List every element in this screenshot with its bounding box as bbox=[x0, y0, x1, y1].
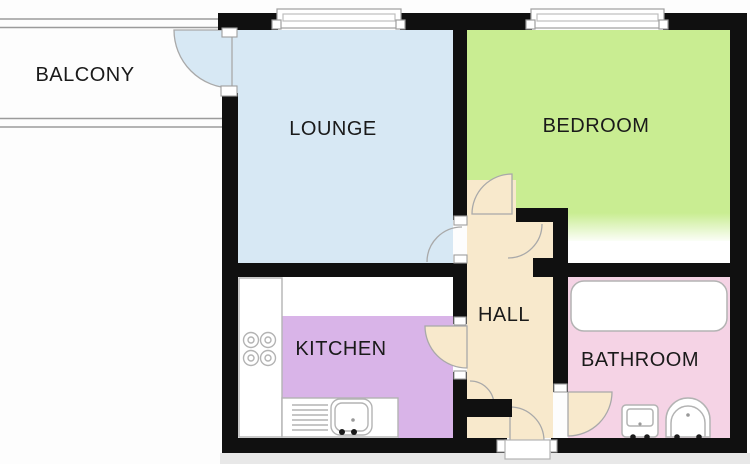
wash-basin-icon bbox=[666, 398, 710, 440]
wall-hall-bathroom bbox=[553, 222, 568, 392]
wall-lounge-kitchen bbox=[222, 263, 467, 277]
wall-doorway-jamb bbox=[533, 258, 553, 277]
bedroom-window bbox=[526, 9, 668, 29]
bathtub-icon bbox=[571, 281, 727, 331]
hall-label: HALL bbox=[478, 304, 530, 326]
wall-bedroom-bathroom bbox=[553, 263, 747, 277]
wall-bedroom-doorway bbox=[516, 208, 568, 222]
lounge-door-jamb-top bbox=[454, 216, 467, 225]
balcony-label: BALCONY bbox=[35, 64, 134, 86]
kitchen-label: KITCHEN bbox=[295, 338, 386, 360]
bedroom-label: BEDROOM bbox=[543, 115, 650, 137]
balcony-door-jamb-bottom bbox=[221, 86, 237, 96]
floor-plan: BALCONY LOUNGE BEDROOM KITCHEN HALL BATH… bbox=[0, 0, 750, 464]
wall-bottom-right bbox=[551, 438, 747, 453]
bathroom-door-jamb bbox=[554, 384, 567, 392]
wall-right bbox=[730, 13, 747, 453]
wall-bottom-left bbox=[222, 438, 507, 453]
bottom-band bbox=[220, 453, 750, 464]
kitchen-sink-icon bbox=[331, 399, 372, 435]
kitchen-door-jamb-top bbox=[454, 317, 466, 325]
kitchen-door-jamb-bottom bbox=[454, 371, 466, 379]
toilet-icon bbox=[622, 405, 658, 440]
wall-hall-niche bbox=[467, 399, 512, 417]
wall-top-mid bbox=[400, 13, 532, 30]
wall-lounge-bedroom bbox=[453, 30, 467, 220]
lounge-floor bbox=[238, 30, 453, 263]
lounge-label: LOUNGE bbox=[289, 118, 376, 140]
balcony-door-jamb-top bbox=[222, 28, 237, 37]
lounge-door-jamb-bottom bbox=[454, 255, 467, 263]
lounge-window bbox=[272, 9, 405, 29]
wall-kitchen-hall-lower bbox=[453, 372, 467, 438]
floor-plan-canvas: BALCONY LOUNGE BEDROOM KITCHEN HALL BATH… bbox=[0, 0, 750, 464]
front-door-threshold bbox=[505, 440, 550, 459]
bathroom-label: BATHROOM bbox=[581, 349, 699, 371]
room-floors bbox=[222, 30, 730, 438]
